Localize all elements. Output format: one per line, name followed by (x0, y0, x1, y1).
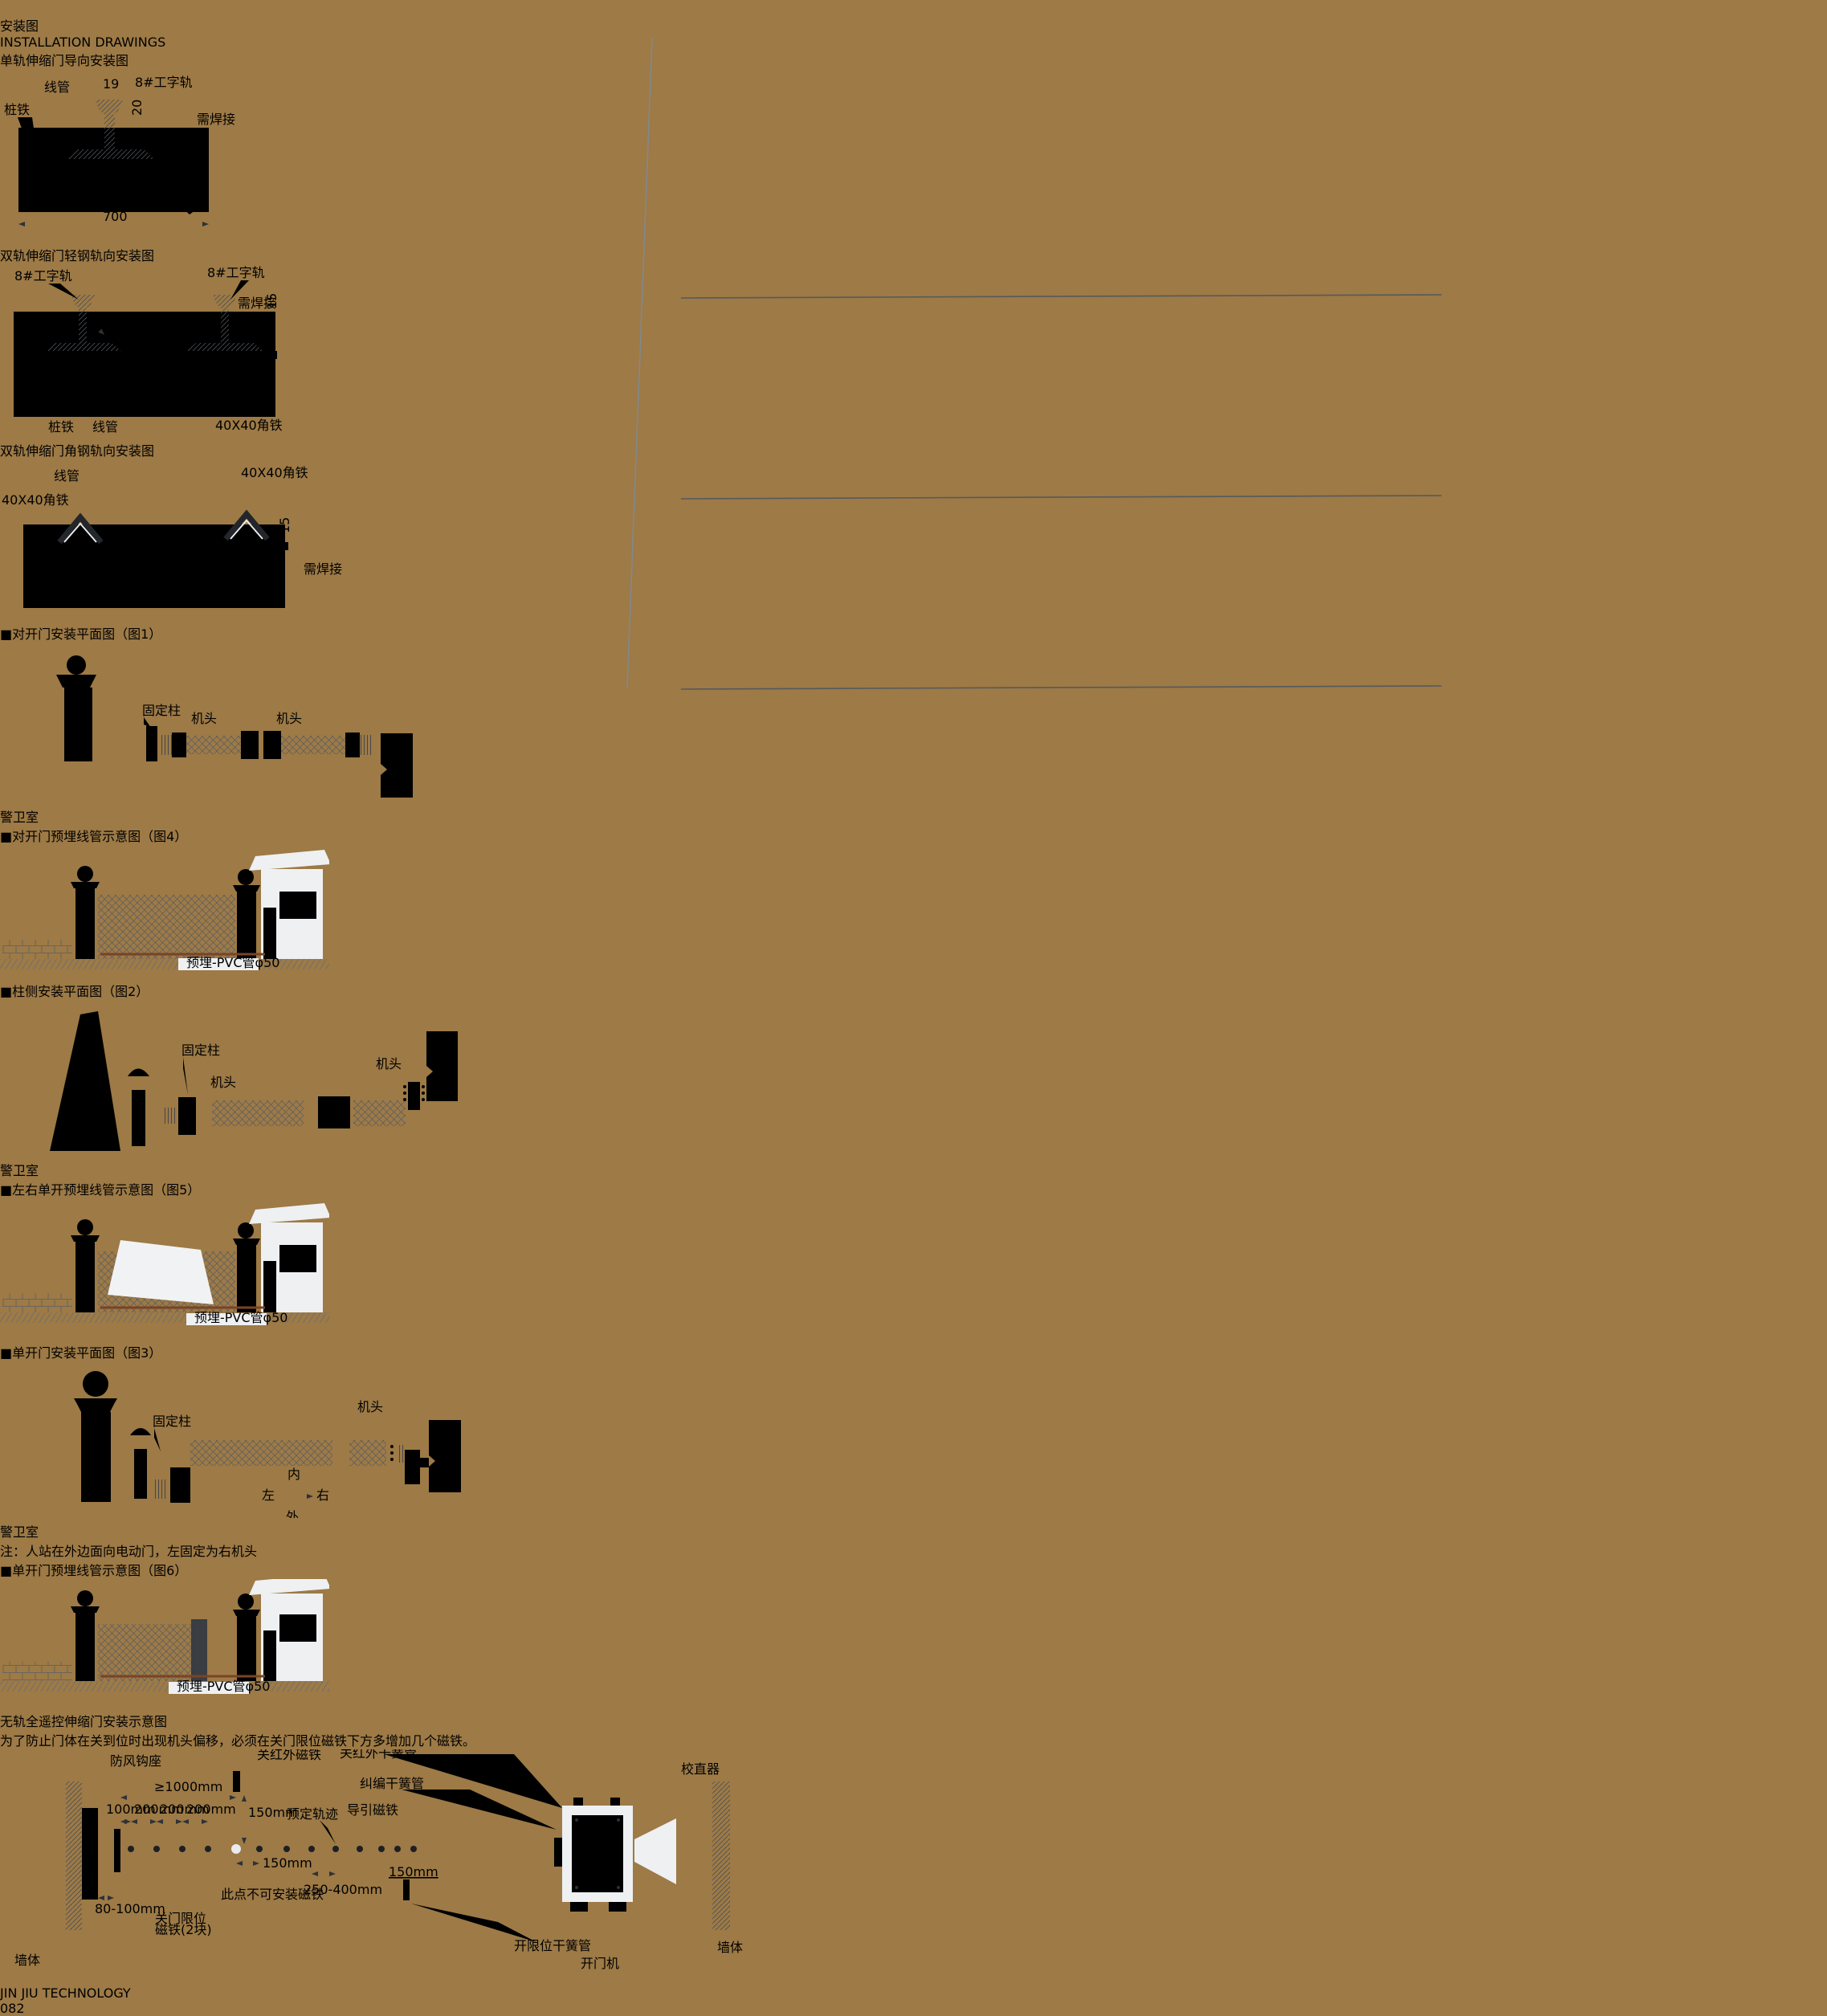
pillar-right (233, 1222, 260, 1312)
compass-inner: 内 (288, 1467, 300, 1482)
catalog-page: 安装图 INSTALLATION DRAWINGS 单轨伸缩门导向安装图 线管 … (0, 15, 1827, 2016)
label-planned-track: 预定轨迹 (287, 1806, 338, 1822)
pillar-left (71, 1590, 100, 1681)
gate-cover (108, 1240, 214, 1304)
bottom-section-title: 无轨全遥控伸缩门安装示意图 (0, 1711, 1827, 1730)
compass-outer: 外 (286, 1509, 299, 1518)
dim-250-400 (312, 1854, 336, 1878)
label-pvc-pipe: 预埋-PVC管φ50 (194, 1310, 288, 1325)
left-wall (66, 1781, 82, 1930)
gate-post (130, 1428, 151, 1502)
label-pvc-pipe: 预埋-PVC管φ50 (177, 1679, 270, 1694)
pillar-left (71, 1219, 100, 1312)
guard-house (249, 1203, 329, 1312)
bottom-section-note: 为了防止门体在关到位时出现机头偏移，必须在关门限位磁铁下方多增加几个磁铁。 (0, 1730, 1827, 1749)
label-head: 机头 (357, 1399, 383, 1414)
label-head-right: 机头 (376, 1056, 402, 1071)
footer-page-number: 082 (0, 2001, 1827, 2016)
label-head-left: 机头 (210, 1075, 236, 1090)
fig2-guard-room-label: 警卫室 (0, 1160, 1827, 1179)
accordion-gate (98, 1624, 191, 1681)
dim-ticks (120, 1822, 208, 1846)
label-straightener: 校直器 (681, 1761, 720, 1777)
no-magnet-point (231, 1844, 241, 1854)
hook-seat (82, 1808, 98, 1900)
label-close-ir-magnet: 关红外磁铁 (257, 1749, 321, 1762)
right-wall (712, 1781, 730, 1930)
compass-left: 左 (262, 1488, 275, 1503)
label-wall-right: 墙体 (717, 1940, 743, 1955)
label-wind-hook: 防风钩座 (110, 1753, 161, 1769)
close-ir-magnet-bar (233, 1771, 240, 1792)
label-gate-operator: 开门机 (581, 1956, 619, 1971)
fence (2, 1639, 72, 1681)
dim-80-100 (98, 1878, 114, 1904)
label-fixed-post: 固定柱 (181, 1043, 220, 1058)
trackless-gate-diagram: 防风钩座 ≥1000mm 100mm 200mm 200mm 200mm 关红外… (0, 1749, 763, 1982)
fig3-header: ■单开门安装平面图（图3） (0, 1342, 1827, 1361)
fig3-guard-room-label: 警卫室 (0, 1521, 1827, 1541)
label-fixed-post: 固定柱 (153, 1414, 191, 1429)
close-limit-magnet-bar (114, 1829, 120, 1872)
fig5-header: ■左右单开预埋线管示意图（图5） (0, 1179, 1827, 1198)
open-limit-magnet-bar (403, 1879, 410, 1900)
straightener (634, 1818, 676, 1884)
fig6-header: ■单开门预埋线管示意图（图6） (0, 1560, 1827, 1579)
dim-150-right: 150mm (263, 1855, 312, 1871)
label-correction-reed: 纠编干簧管 (360, 1776, 424, 1791)
guard-house (249, 1579, 329, 1681)
fig5-elevation-diagram: 预埋-PVC管φ50 (0, 1198, 329, 1339)
fig3-note: 注：人站在外边面向电动门，左固定为右机头 (0, 1541, 1827, 1560)
dim-200c: 200mm (186, 1802, 236, 1817)
label-wall-left: 墙体 (14, 1953, 40, 1968)
dim-1000: ≥1000mm (154, 1779, 222, 1794)
gate-machine-head (191, 1619, 207, 1681)
pillar-right (233, 1594, 260, 1681)
dim-150-machine: 150mm (389, 1864, 438, 1879)
compass-right: 右 (316, 1488, 329, 1503)
label-guide-magnet: 导引磁铁 (347, 1802, 398, 1818)
dim-250-400-text: 250-400mm (304, 1882, 382, 1897)
rule-lines (0, 0, 1827, 1027)
magnet-dots (128, 1846, 417, 1852)
fig3-plan-diagram: 固定柱 机头 内 外 左 右 (0, 1361, 470, 1518)
fig6-elevation-diagram: 预埋-PVC管φ50 (0, 1579, 329, 1708)
label-close-limit-2: 磁铁(2块) (155, 1922, 212, 1937)
label-open-limit-reed: 开限位干簧管 (514, 1938, 591, 1953)
gate-operator (554, 1798, 633, 1912)
direction-compass: 内 外 左 右 (262, 1467, 329, 1518)
footer-brand: JIN JIU TECHNOLOGY (0, 1985, 1827, 2001)
gate-post (128, 1069, 149, 1150)
fence (2, 1271, 72, 1312)
